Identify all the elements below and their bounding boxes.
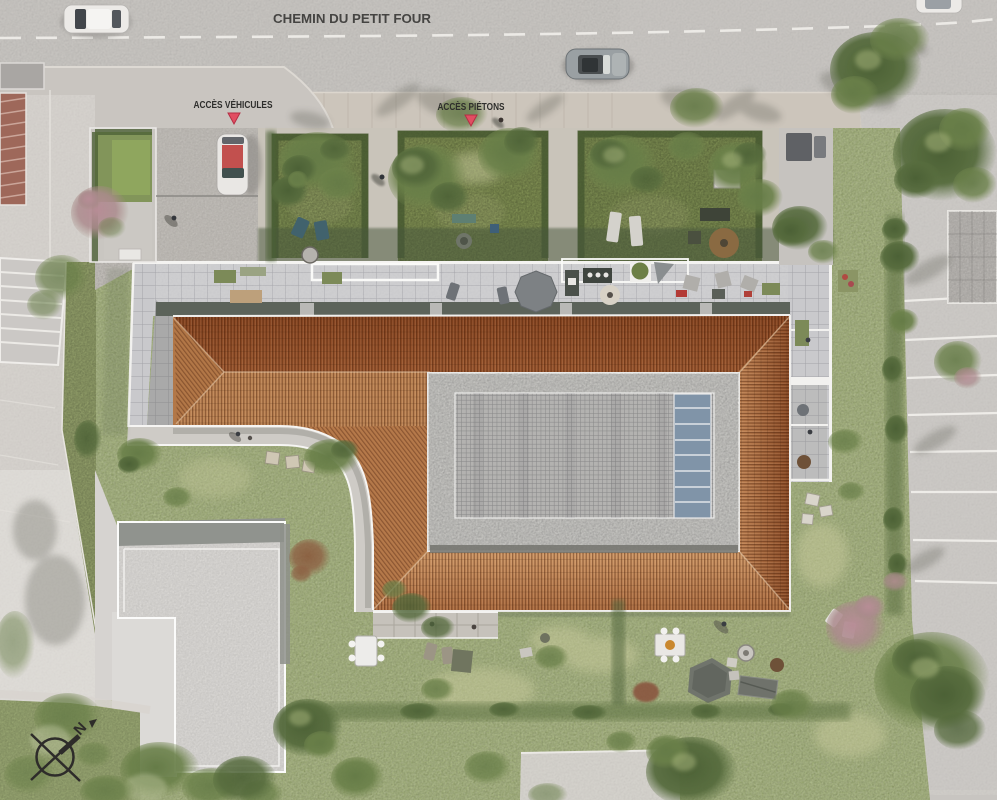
svg-text:ACCÈS VÉHICULES: ACCÈS VÉHICULES (194, 98, 273, 111)
svg-text:CHEMIN DU PETIT FOUR: CHEMIN DU PETIT FOUR (273, 11, 431, 26)
svg-text:ACCÈS PIÉTONS: ACCÈS PIÉTONS (438, 100, 505, 113)
